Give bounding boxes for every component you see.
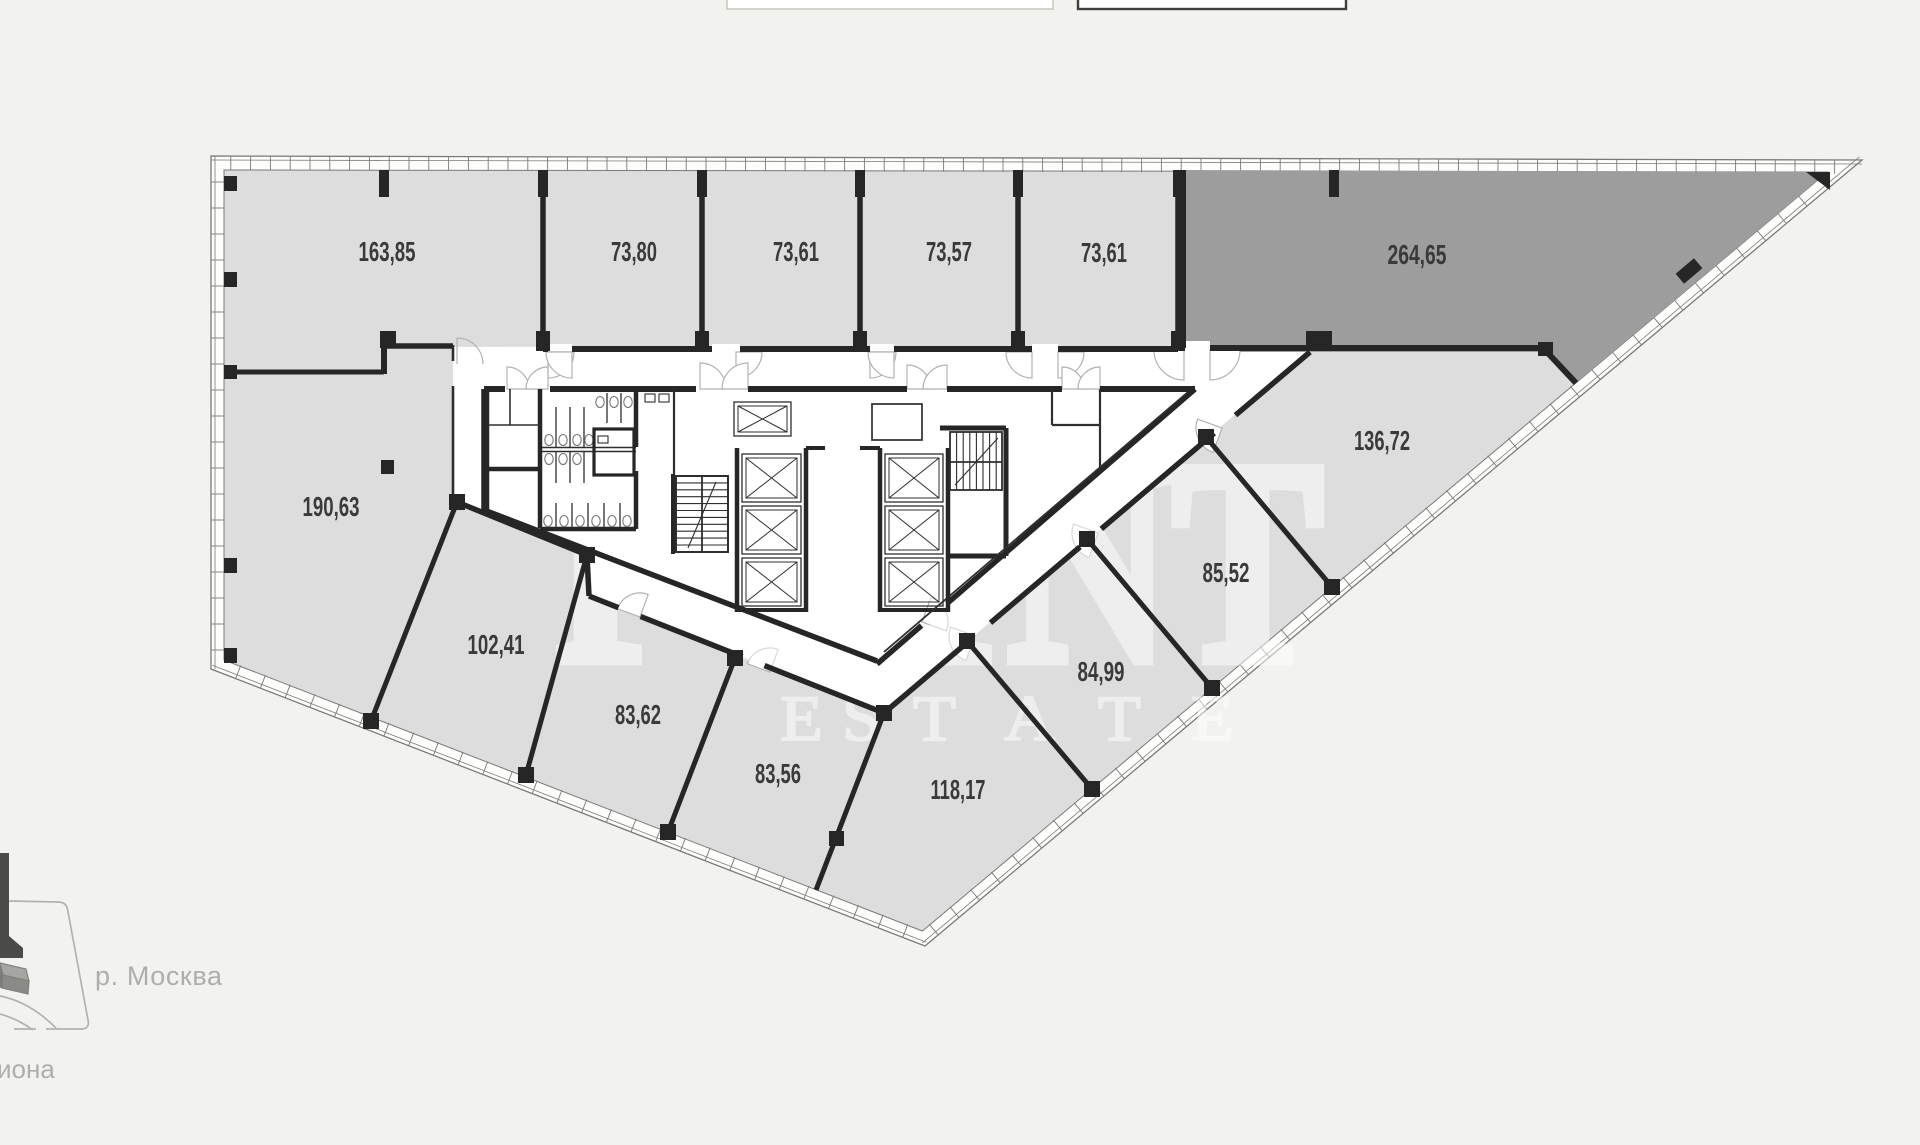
svg-text:190,63: 190,63 — [303, 491, 360, 522]
svg-text:T: T — [1098, 682, 1141, 754]
svg-text:иона: иона — [0, 1054, 55, 1084]
svg-text:T: T — [913, 682, 956, 754]
svg-text:83,56: 83,56 — [755, 758, 801, 789]
svg-text:84,99: 84,99 — [1078, 656, 1125, 687]
svg-text:85,52: 85,52 — [1203, 557, 1250, 588]
svg-text:73,57: 73,57 — [926, 236, 972, 267]
svg-text:E: E — [780, 682, 823, 754]
svg-text:73,80: 73,80 — [611, 236, 657, 267]
svg-text:264,65: 264,65 — [1388, 239, 1447, 270]
svg-text:S: S — [842, 682, 881, 754]
svg-text:р. Москва: р. Москва — [95, 961, 223, 991]
svg-text:102,41: 102,41 — [468, 629, 525, 660]
svg-text:83,62: 83,62 — [615, 699, 661, 730]
svg-text:118,17: 118,17 — [931, 774, 986, 805]
svg-text:136,72: 136,72 — [1354, 425, 1410, 456]
svg-text:73,61: 73,61 — [1081, 237, 1127, 268]
svg-text:73,61: 73,61 — [773, 236, 819, 267]
svg-text:163,85: 163,85 — [359, 236, 416, 267]
